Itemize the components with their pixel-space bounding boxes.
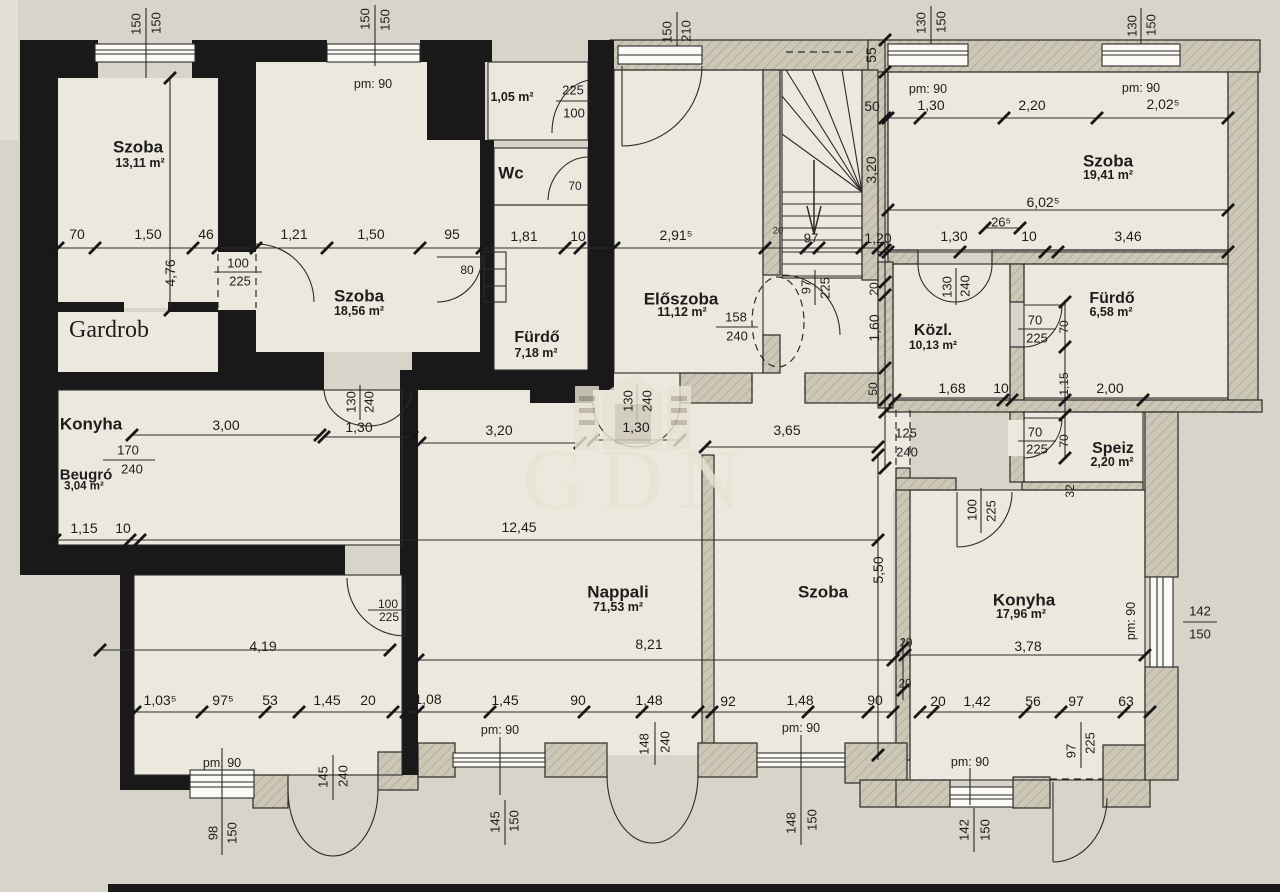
opening-label: 240 <box>659 731 672 753</box>
dim-label: 20 <box>773 226 784 236</box>
dim-label: 1,08 <box>414 692 441 706</box>
opening-label: 225 <box>1026 332 1048 345</box>
dim-label: 4,76 <box>163 259 177 286</box>
room-area-label: 6,58 m² <box>1089 306 1132 319</box>
opening-label: 100 <box>378 598 398 610</box>
opening-label: 150 <box>1189 628 1211 641</box>
dim-label: 2,20 <box>1018 98 1045 112</box>
opening-label: 240 <box>641 390 654 412</box>
room-label: Konyha <box>60 416 122 433</box>
height-label: pm: 90 <box>1122 82 1160 95</box>
dim-label: 3,46 <box>1114 229 1141 243</box>
dim-label: 56 <box>1025 694 1041 708</box>
room-label: Gardrob <box>69 318 149 342</box>
opening-label: 240 <box>363 391 376 413</box>
opening-label: 240 <box>337 765 350 787</box>
opening-label: 150 <box>979 819 992 841</box>
dim-label: 1,30 <box>622 420 649 434</box>
dim-label: 1,48 <box>786 693 813 707</box>
dim-label: 90 <box>867 693 883 707</box>
opening-label: 80 <box>460 264 473 276</box>
dim-label: 20 <box>930 694 946 708</box>
floor-plan-canvas: GDN Szoba13,11 m²Szoba18,56 m²WcFürdő7,1… <box>0 0 1280 892</box>
dim-label: 32 <box>1064 484 1076 497</box>
opening-label: 150 <box>508 810 521 832</box>
dim-label: 10 <box>1021 229 1037 243</box>
room-label: Nappali <box>587 584 648 601</box>
room-label: Szoba <box>113 139 163 156</box>
room-area-label: 7,18 m² <box>514 347 557 360</box>
opening-label: 150 <box>661 21 674 43</box>
opening-label: 158 <box>725 311 747 324</box>
opening-label: 130 <box>1126 15 1139 37</box>
dim-label: 1,15 <box>1058 372 1070 395</box>
opening-label: 240 <box>121 463 143 476</box>
opening-label: 225 <box>229 275 251 288</box>
room-label: Fürdő <box>514 330 559 346</box>
room-label: Szoba <box>334 288 384 305</box>
dim-label: 20 <box>360 693 376 707</box>
opening-label: 70 <box>568 180 581 192</box>
dim-label: 1,21 <box>280 227 307 241</box>
dim-label: 3,20 <box>485 423 512 437</box>
dim-label: 1,20 <box>864 231 891 245</box>
dim-label: 1,60 <box>867 314 881 341</box>
room-area-label: 3,04 m² <box>64 481 104 493</box>
opening-label: 148 <box>785 812 798 834</box>
dim-label: 90 <box>570 693 586 707</box>
room-label: Wc <box>498 165 524 182</box>
dim-label: 95 <box>444 227 460 241</box>
dim-label: 10 <box>570 229 586 243</box>
room-area-label: 1,05 m² <box>490 91 533 104</box>
opening-label: 150 <box>379 9 392 31</box>
opening-label: 240 <box>959 275 972 297</box>
dim-label: 2,91⁵ <box>659 228 692 242</box>
dim-label: 1,45 <box>491 693 518 707</box>
height-label: pm: 90 <box>1125 602 1138 640</box>
opening-label: 70 <box>1028 314 1042 327</box>
opening-label: 100 <box>563 107 585 120</box>
dim-label: 6,02⁵ <box>1026 195 1059 209</box>
dim-label: 2,02⁵ <box>1146 97 1179 111</box>
dim-label: 2,00 <box>1096 381 1123 395</box>
height-label: pm: 90 <box>203 757 241 770</box>
opening-label: 97 <box>800 280 813 294</box>
dim-label: 92 <box>720 694 736 708</box>
opening-label: 225 <box>985 500 998 522</box>
opening-label: 130 <box>622 390 635 412</box>
dim-label: 10 <box>115 521 131 535</box>
opening-label: 70 <box>1028 426 1042 439</box>
dim-label: 1,48 <box>635 693 662 707</box>
opening-label: 148 <box>638 733 651 755</box>
opening-label: 142 <box>1189 605 1211 618</box>
opening-label: 240 <box>896 446 918 459</box>
dim-label: 8,21 <box>635 637 662 651</box>
room-area-label: 11,12 m² <box>657 306 706 319</box>
dim-label: 1,30 <box>940 229 967 243</box>
opening-label: 225 <box>819 277 832 299</box>
dim-label: 70 <box>69 227 85 241</box>
opening-label: 97 <box>1065 744 1078 758</box>
room-label: Közl. <box>914 323 952 339</box>
dim-label: 1,03⁵ <box>143 693 176 707</box>
dim-label: 20 <box>868 282 880 295</box>
dim-label: 1,15 <box>70 521 97 535</box>
dim-label: 5,50 <box>871 556 885 583</box>
opening-label: 130 <box>941 276 954 298</box>
dim-label: 10 <box>993 381 1009 395</box>
opening-label: 150 <box>226 822 239 844</box>
dim-label: 1,50 <box>357 227 384 241</box>
dim-label: 1,30 <box>917 98 944 112</box>
opening-label: 170 <box>117 444 139 457</box>
height-label: pm: 90 <box>481 724 519 737</box>
opening-label: 150 <box>359 8 372 30</box>
height-label: pm: 90 <box>354 78 392 91</box>
dim-label: 20 <box>899 679 912 691</box>
dim-label: 3,00 <box>212 418 239 432</box>
room-area-label: 18,56 m² <box>334 305 384 318</box>
dim-label: 1,30 <box>345 420 372 434</box>
opening-label: 145 <box>317 766 330 788</box>
opening-label: 225 <box>1084 732 1097 754</box>
room-area-label: 71,53 m² <box>593 601 643 614</box>
height-label: pm: 90 <box>909 83 947 96</box>
dim-label: 50 <box>867 382 879 395</box>
opening-label: 150 <box>806 809 819 831</box>
room-area-label: 13,11 m² <box>115 157 164 170</box>
dim-label: 50 <box>228 227 244 241</box>
opening-label: 225 <box>379 611 399 623</box>
dim-label: 1,42 <box>963 694 990 708</box>
opening-label: 150 <box>130 13 143 35</box>
dim-label: 46 <box>198 227 214 241</box>
dim-label: 1,68 <box>938 381 965 395</box>
opening-label: 150 <box>150 12 163 34</box>
opening-label: 98 <box>207 826 220 840</box>
opening-label: 142 <box>958 819 971 841</box>
dim-label: 63 <box>1118 694 1134 708</box>
height-label: pm: 90 <box>951 756 989 769</box>
opening-label: 100 <box>227 257 249 270</box>
dim-label: 97⁵ <box>212 693 233 707</box>
room-area-label: 2,20 m² <box>1090 456 1133 469</box>
dim-label: 20 <box>900 638 913 650</box>
dim-label: 97 <box>1068 694 1084 708</box>
dim-label: 4,19 <box>249 639 276 653</box>
dim-label: 50 <box>864 99 880 113</box>
opening-label: 125 <box>895 427 917 440</box>
height-label: pm: 90 <box>782 722 820 735</box>
room-label: Szoba <box>798 584 848 601</box>
dim-label: 3,78 <box>1014 639 1041 653</box>
label-layer: Szoba13,11 m²Szoba18,56 m²WcFürdő7,18 m²… <box>0 0 1280 892</box>
opening-label: 210 <box>680 20 693 42</box>
opening-label: 130 <box>915 12 928 34</box>
dim-label: 3,20 <box>864 156 878 183</box>
dim-label: 3,65 <box>773 423 800 437</box>
dim-label: 70 <box>1058 320 1070 333</box>
dim-label: 1,45 <box>313 693 340 707</box>
dim-label: 1,81 <box>510 229 537 243</box>
opening-label: 100 <box>966 499 979 521</box>
opening-label: 225 <box>562 84 584 97</box>
dim-label: 97 <box>804 232 818 245</box>
dim-label: 55 <box>864 47 878 63</box>
dim-label: 1,50 <box>134 227 161 241</box>
dim-label: 26⁵ <box>991 216 1011 229</box>
room-area-label: 10,13 m² <box>909 339 957 351</box>
opening-label: 150 <box>1145 14 1158 36</box>
opening-label: 150 <box>935 11 948 33</box>
dim-label: 53 <box>262 693 278 707</box>
dim-label: 12,45 <box>501 520 536 534</box>
opening-label: 225 <box>1026 443 1048 456</box>
opening-label: 145 <box>489 811 502 833</box>
dim-label: 70 <box>1058 434 1070 447</box>
opening-label: 130 <box>345 391 358 413</box>
opening-label: 240 <box>726 330 748 343</box>
room-area-label: 19,41 m² <box>1083 169 1133 182</box>
room-area-label: 17,96 m² <box>996 608 1046 621</box>
